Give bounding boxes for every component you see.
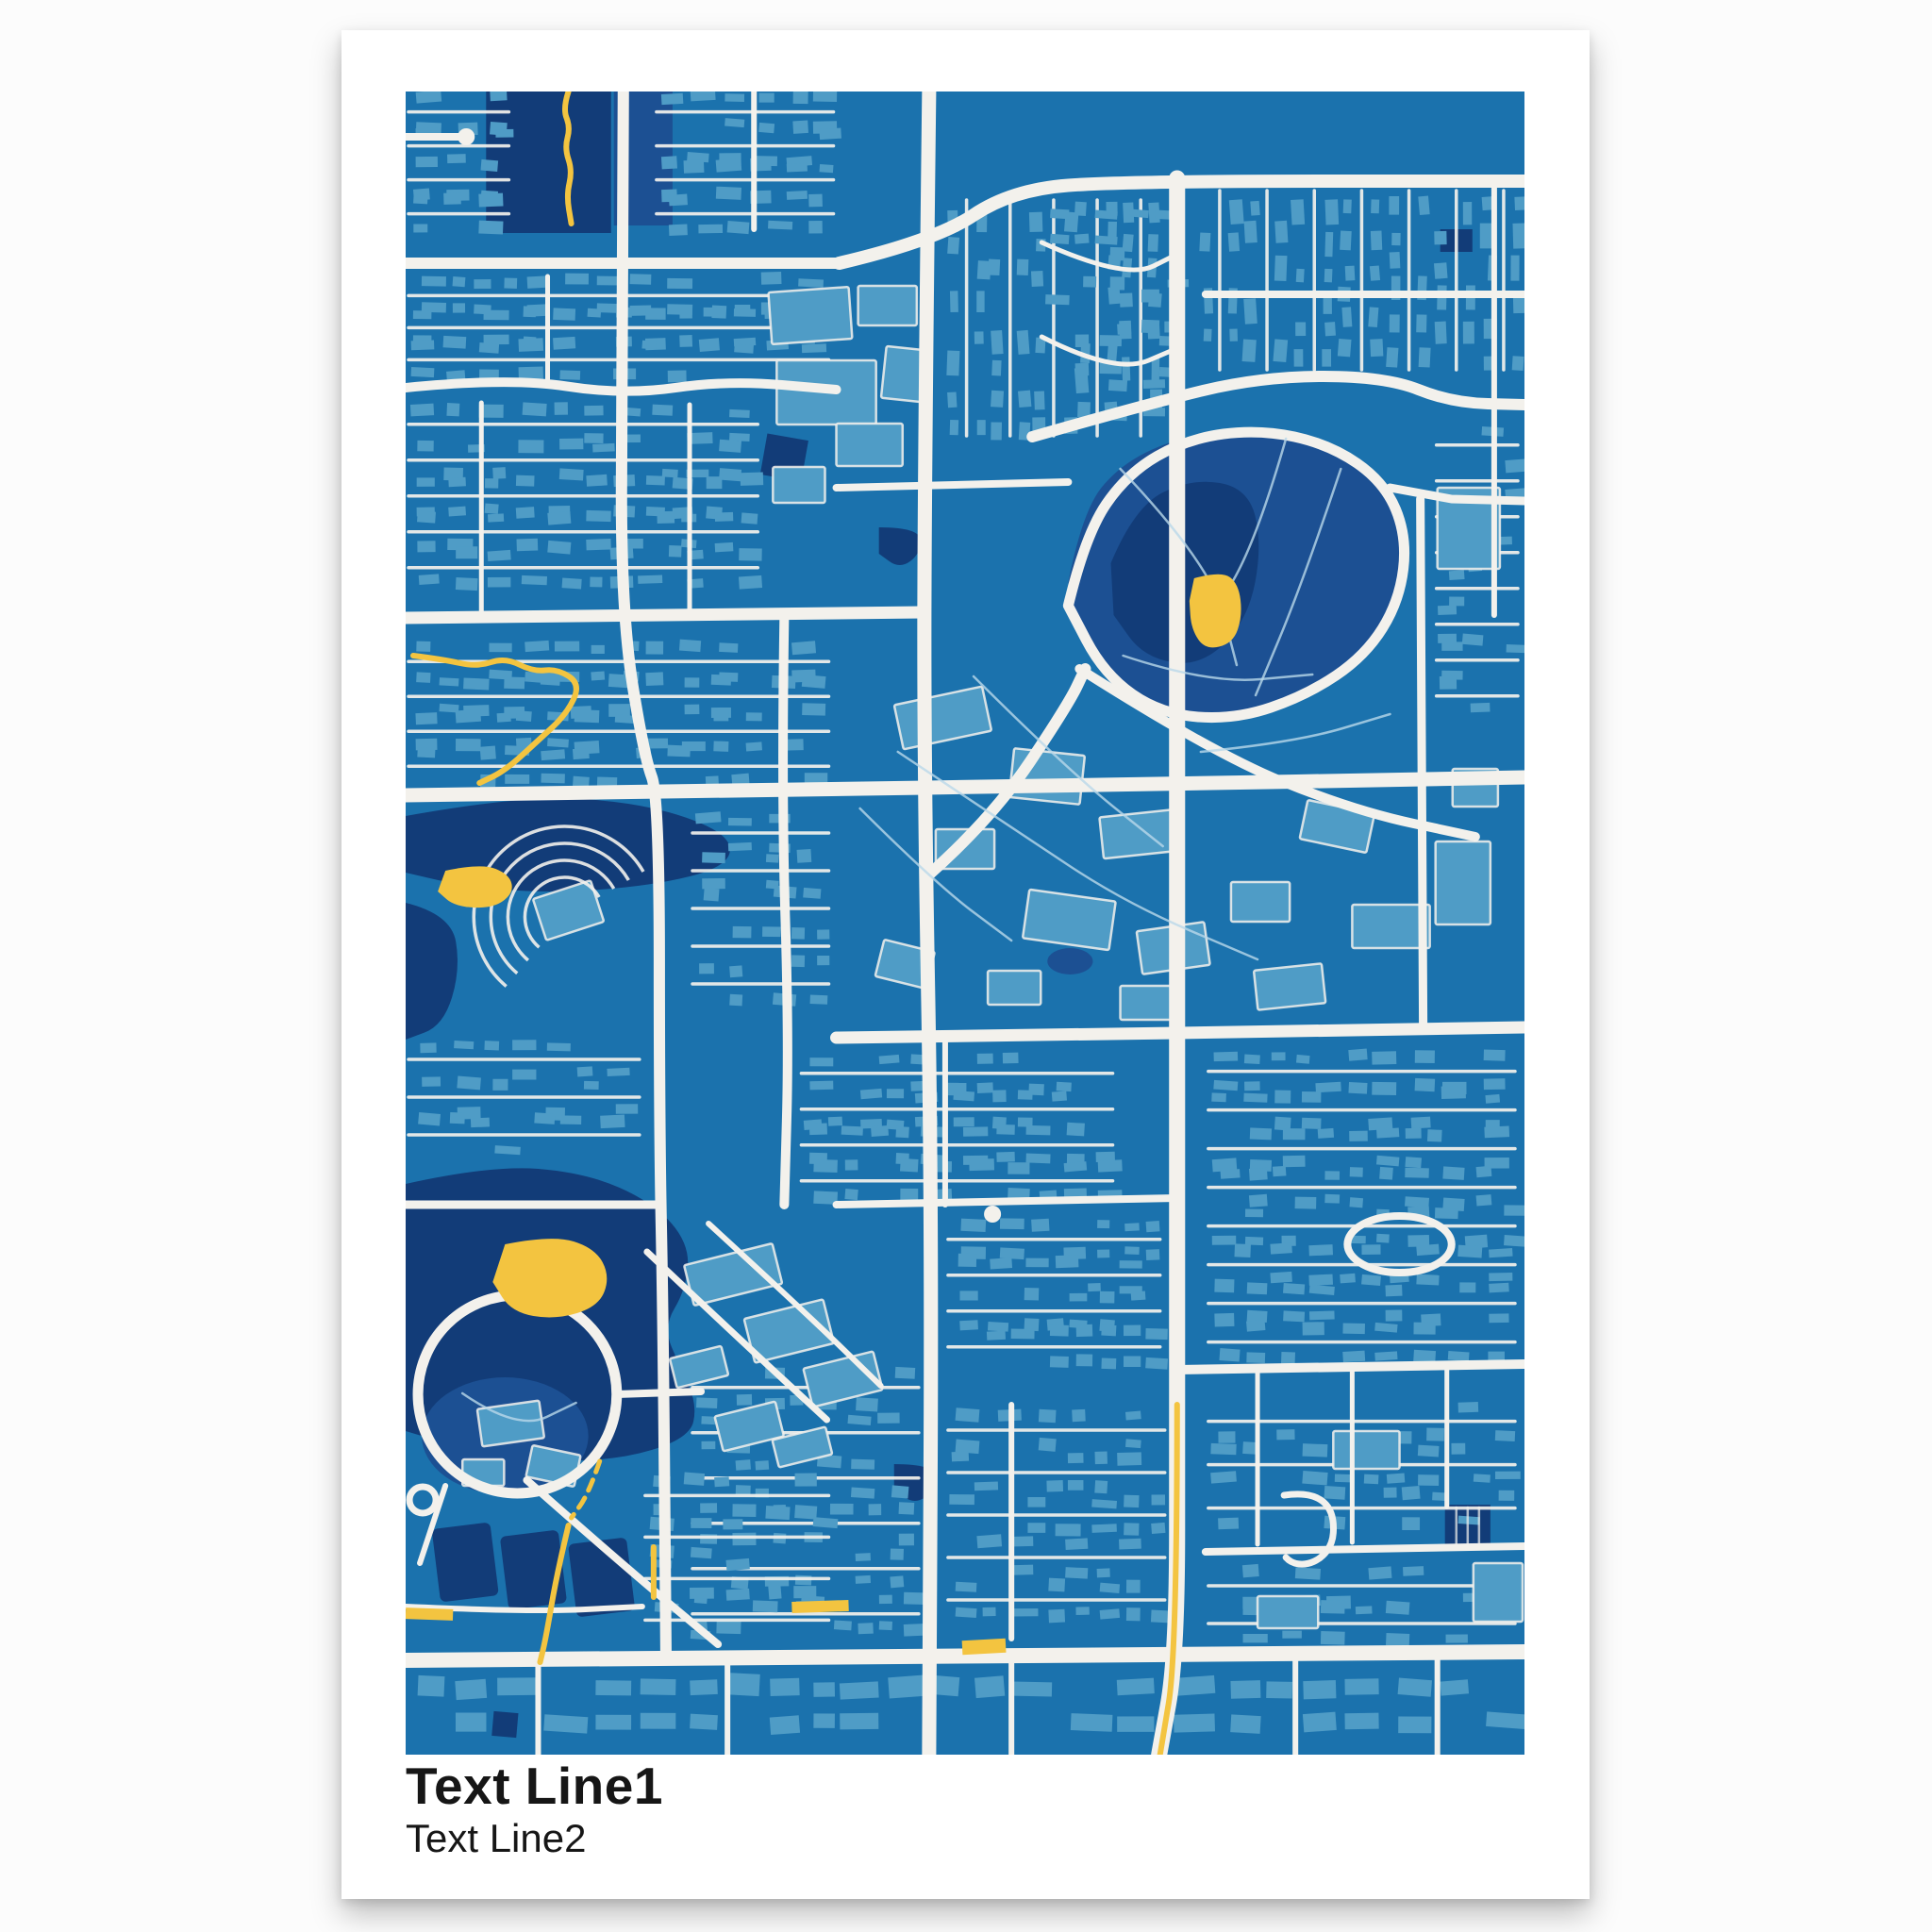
- caption-line2: Text Line2: [406, 1818, 663, 1859]
- page-background: Text Line1 Text Line2: [0, 0, 1932, 1932]
- poster-caption: Text Line1 Text Line2: [406, 1759, 663, 1859]
- caption-line1: Text Line1: [406, 1759, 663, 1814]
- city-map-graphic: [406, 92, 1524, 1755]
- map-print-area: [406, 92, 1524, 1755]
- poster: Text Line1 Text Line2: [341, 30, 1590, 1899]
